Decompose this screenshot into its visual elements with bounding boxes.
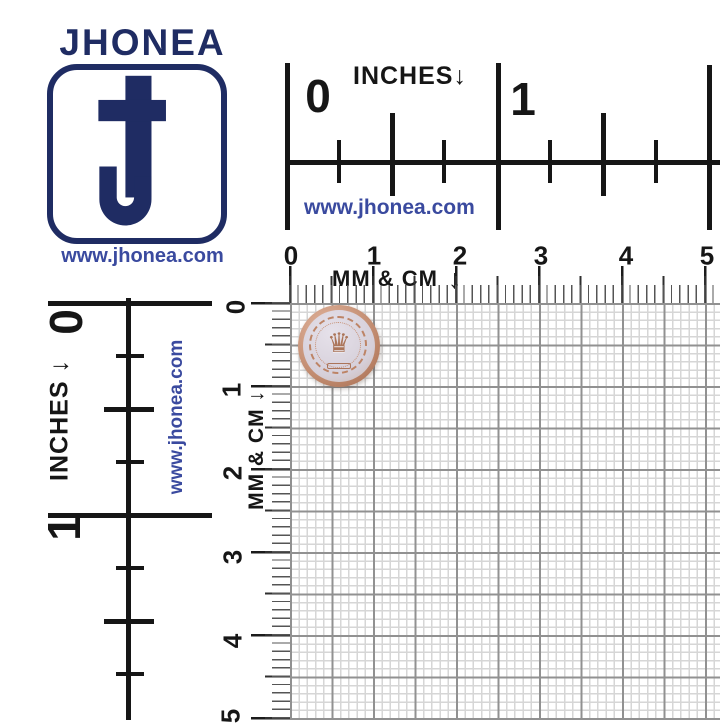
inch-tick-half: [104, 407, 154, 412]
inch-tick-major: [707, 65, 712, 230]
inch-ruler-title-left: INCHES ↓: [46, 359, 75, 481]
inch-tick-quarter: [548, 140, 552, 183]
inch-tick-quarter: [442, 140, 446, 183]
inch-label-1: 1: [510, 72, 536, 126]
mm-number-left: 3: [218, 550, 249, 564]
brand-website: www.jhonea.com: [40, 245, 245, 268]
mm-ticks-top: [289, 285, 720, 303]
inch-tick-quarter: [337, 140, 341, 183]
mm-number-left: 5: [216, 709, 247, 723]
inch-label-0: 0: [305, 69, 331, 123]
inch-tick-quarter: [654, 140, 658, 183]
inch-tick-half: [390, 113, 395, 196]
inch-tick-quarter: [116, 354, 144, 358]
inch-tick-quarter: [116, 460, 144, 464]
ruler-website-left: www.jhonea.com: [166, 340, 188, 495]
inch-ruler-baseline-left: [126, 298, 131, 720]
inch-label-0-left: 0: [39, 309, 93, 335]
ruler-website-top: www.jhonea.com: [304, 196, 475, 220]
inch-tick-half: [104, 619, 154, 624]
inch-tick-quarter: [116, 672, 144, 676]
brand-monogram-j-icon: [53, 70, 221, 238]
size-chart-image: JHONEA www.jhonea.com 0 1 INCHES↓ www.jh…: [0, 0, 720, 720]
inch-tick-quarter: [116, 566, 144, 570]
crown-icon: ♛: [327, 328, 351, 359]
mm-number-left: 0: [221, 300, 252, 314]
mm-number-left: 1: [217, 383, 248, 397]
brand-name: JHONEA: [50, 22, 235, 64]
inch-tick-major: [496, 63, 501, 230]
inch-tick-half: [601, 113, 606, 196]
banner-ornament: [327, 363, 351, 369]
inch-ruler-title: INCHES↓: [353, 62, 467, 91]
mm-number-left: 2: [218, 466, 249, 480]
inch-tick-major: [285, 63, 290, 230]
product-button-photo: ♛: [298, 305, 380, 387]
down-arrow-icon: ↓: [453, 62, 467, 90]
inch-ruler-title-text: INCHES: [353, 62, 453, 90]
inch-label-1-left: 1: [37, 515, 91, 541]
mm-number-left: 4: [218, 634, 249, 648]
mm-ticks-left: [272, 302, 290, 720]
inch-tick-major: [48, 301, 212, 306]
brand-monogram-box: [47, 64, 227, 244]
